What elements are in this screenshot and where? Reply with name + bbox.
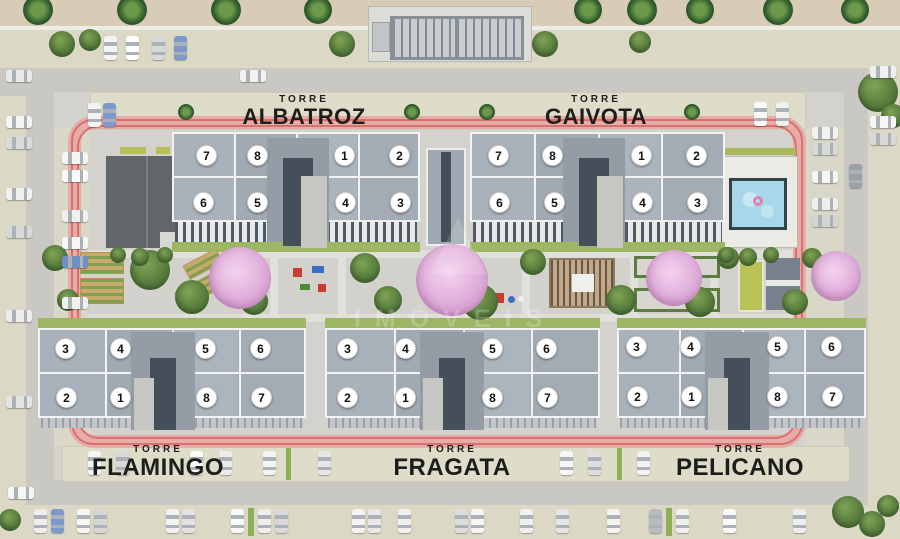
unit-badge[interactable]: 2 [389,145,410,166]
parked-car [62,170,88,182]
unit-badge[interactable]: 3 [55,338,76,359]
unit-badge[interactable]: 4 [110,338,131,359]
watermark-logo [430,218,486,274]
unit-badge[interactable]: 5 [247,192,268,213]
parked-car [6,396,32,408]
tower-name: GAIVOTA [545,105,647,128]
stair-tower [597,176,623,248]
tree [110,247,126,263]
tree [520,249,546,275]
strip-divider [248,508,254,536]
tower-name: FRAGATA [393,455,510,480]
strip-divider [617,448,622,480]
parked-car [6,116,32,128]
parked-car [607,509,620,533]
unit-badge[interactable]: 5 [544,192,565,213]
lawn-strip [617,318,866,328]
parked-car [126,36,139,60]
parked-car [398,509,411,533]
parked-car [318,451,331,475]
tree [49,31,75,57]
playground-toy-red [318,284,326,292]
unit-badge[interactable]: 3 [687,192,708,213]
parked-car [77,509,90,533]
parked-car [103,103,116,127]
parked-car [637,451,650,475]
tree [329,31,355,57]
stair-tower [708,378,728,430]
unit-badge[interactable]: 3 [626,336,647,357]
tower-label-fragata: TORRE FRAGATA [393,444,510,480]
parked-car [723,509,736,533]
parked-car [471,509,484,533]
unit-badge[interactable]: 1 [681,386,702,407]
unit-badge[interactable]: 3 [337,338,358,359]
unit-badge[interactable]: 2 [337,387,358,408]
tree [0,509,21,531]
unit-badge[interactable]: 4 [680,336,701,357]
stair-tower [423,378,443,430]
tree [79,29,101,51]
parked-car [776,102,789,126]
unit-badge[interactable]: 6 [536,338,557,359]
unit-badge[interactable]: 5 [195,338,216,359]
tower-label-pelicano: TORRE PELICANO [676,444,804,480]
unit-badge[interactable]: 5 [482,338,503,359]
parked-car [62,237,88,249]
parked-car [455,509,468,533]
tower-label-gaivota: TORRE GAIVOTA [545,94,647,128]
unit-badge[interactable]: 8 [247,145,268,166]
unit-badge[interactable]: 8 [196,387,217,408]
parked-car [588,451,601,475]
parked-car [520,509,533,533]
tree [739,248,757,266]
unit-badge[interactable]: 8 [482,387,503,408]
unit-badge[interactable]: 1 [334,145,355,166]
parked-car [556,509,569,533]
parked-car [166,509,179,533]
parked-car [676,509,689,533]
parked-car [88,103,101,127]
stair-tower [134,378,154,430]
parked-car [6,226,32,238]
unit-badge[interactable]: 2 [627,386,648,407]
parked-car [812,198,838,210]
parked-car [6,137,32,149]
palm-tree [479,104,495,120]
parked-car [793,509,806,533]
unit-badge[interactable]: 7 [537,387,558,408]
parked-car [754,102,767,126]
parked-car [6,188,32,200]
palm-tree [178,104,194,120]
parked-car [51,509,64,533]
tower-label-albatroz: TORRE ALBATROZ [242,94,365,128]
unit-badge[interactable]: 7 [488,145,509,166]
unit-badge[interactable]: 4 [632,192,653,213]
pergola-table [572,274,594,292]
tree [131,248,149,266]
tree [629,31,651,53]
tree [175,280,209,314]
parked-car [104,36,117,60]
parked-car [8,487,34,499]
parked-car [6,310,32,322]
unit-badge[interactable]: 8 [767,386,788,407]
south-parking-strip [0,505,900,539]
parked-car [34,509,47,533]
unit-badge[interactable]: 2 [686,145,707,166]
lawn-strip [38,318,306,328]
gate-canopy-divider [455,16,459,60]
parked-car [649,509,662,533]
parked-car [812,215,838,227]
parked-car [62,256,88,268]
unit-badge[interactable]: 6 [250,338,271,359]
unit-badge[interactable]: 8 [542,145,563,166]
playground-toy-blue [508,296,515,303]
strip-divider [666,508,672,536]
flowering-tree [646,250,702,306]
flowering-tree [209,247,271,309]
parked-car [174,36,187,60]
unit-badge[interactable]: 3 [390,192,411,213]
unit-badge[interactable]: 6 [193,192,214,213]
watermark-text: IMÓVEIS [354,305,556,334]
parked-car [812,127,838,139]
parked-car [62,210,88,222]
parked-car [870,116,896,128]
parked-car [231,509,244,533]
pool-hedge [718,148,796,155]
parked-car [870,66,896,78]
parked-car [152,36,165,60]
unit-badge[interactable]: 7 [822,386,843,407]
west-parking-strip [0,96,26,510]
unit-badge[interactable]: 7 [196,145,217,166]
unit-badge[interactable]: 1 [395,387,416,408]
sport-court [738,260,764,312]
tower-name: PELICANO [676,455,804,480]
tower-name: ALBATROZ [242,105,365,128]
parked-car [6,70,32,82]
parked-car [62,152,88,164]
gate-booth [372,22,390,52]
tower-label-flamingo: TORRE FLAMINGO [92,444,224,480]
unit-badge[interactable]: 5 [767,336,788,357]
unit-badge[interactable]: 4 [395,338,416,359]
tower-name: FLAMINGO [92,455,224,480]
parked-car [240,70,266,82]
planter [120,147,146,154]
parked-car [368,509,381,533]
flowering-tree [811,251,861,301]
playground-toy-green [300,284,310,290]
parked-car [849,164,862,188]
planter [156,147,170,154]
parked-car [352,509,365,533]
unit-badge[interactable]: 1 [631,145,652,166]
unit-badge[interactable]: 6 [489,192,510,213]
tree [606,285,636,315]
strip-divider [286,448,291,480]
parked-car [62,297,88,309]
unit-badge[interactable]: 2 [56,387,77,408]
playground-toy-red [293,268,302,277]
parked-car [258,509,271,533]
unit-badge[interactable]: 1 [110,387,131,408]
parked-car [870,133,896,145]
tree [763,247,779,263]
site-plan: TORRE ALBATROZ TORRE GAIVOTA TORRE FLAMI… [0,0,900,539]
palm-tree [684,104,700,120]
pool-float [753,196,763,206]
palm-tree [404,104,420,120]
playground-toy-white [518,296,524,302]
parked-car [275,509,288,533]
stair-tower [301,176,327,248]
parked-car [812,143,838,155]
tree [718,247,734,263]
clubhouse-roof-seam [146,156,148,248]
parked-car [560,451,573,475]
tree [782,289,808,315]
tree [877,495,899,517]
unit-badge[interactable]: 7 [251,387,272,408]
tree [532,31,558,57]
tree [157,247,173,263]
unit-badge[interactable]: 6 [821,336,842,357]
unit-badge[interactable]: 4 [335,192,356,213]
parked-car [812,171,838,183]
playground-toy-blue [312,266,324,273]
tree [350,253,380,283]
parked-car [94,509,107,533]
parked-car [263,451,276,475]
parked-car [182,509,195,533]
